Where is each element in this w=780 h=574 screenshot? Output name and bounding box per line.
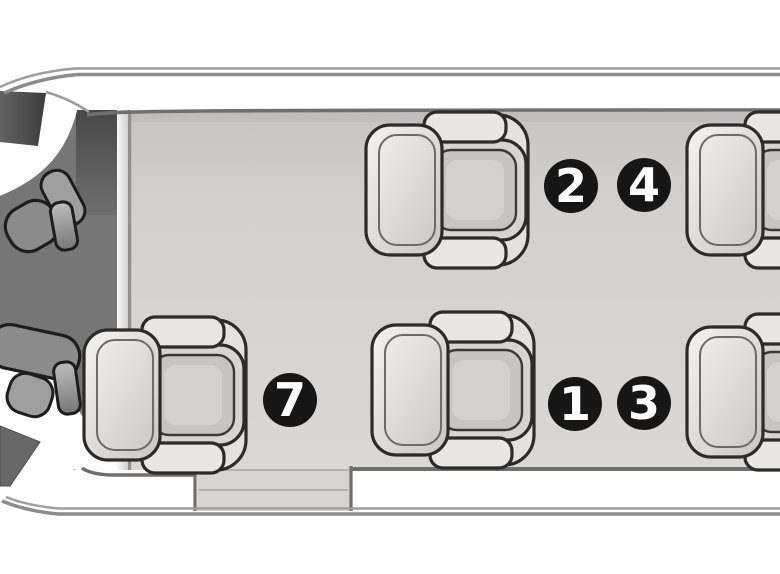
seat-number-badge-7: 7	[263, 373, 317, 427]
seat-number-badge-2: 2	[544, 159, 598, 213]
passenger-seat-bottom-right	[687, 314, 780, 470]
passenger-seat-bottom-mid	[372, 312, 534, 468]
hull-bottom-inner-line	[6, 497, 780, 509]
hull-top-inner-line	[4, 75, 780, 94]
passenger-seat-top-mid	[366, 112, 528, 268]
passenger-seat-bottom-left	[84, 317, 246, 473]
badge-label: 4	[628, 158, 660, 212]
instrument-panel	[0, 91, 46, 146]
seat-number-badge-3: 3	[617, 376, 671, 430]
passenger-seat-top-right	[687, 112, 780, 268]
entry-door-well	[195, 466, 352, 511]
seat-number-badge-1: 1	[548, 377, 602, 431]
cabin-floorplan-svg: 2 4 7 1 3	[0, 0, 780, 574]
seat-number-badge-4: 4	[617, 158, 671, 212]
badge-label: 3	[628, 376, 660, 430]
badge-label: 1	[559, 377, 591, 431]
cabin-diagram: 2 4 7 1 3	[0, 0, 780, 574]
hull-top-outer-line	[0, 69, 780, 88]
badge-label: 7	[274, 373, 306, 427]
badge-label: 2	[555, 159, 587, 213]
